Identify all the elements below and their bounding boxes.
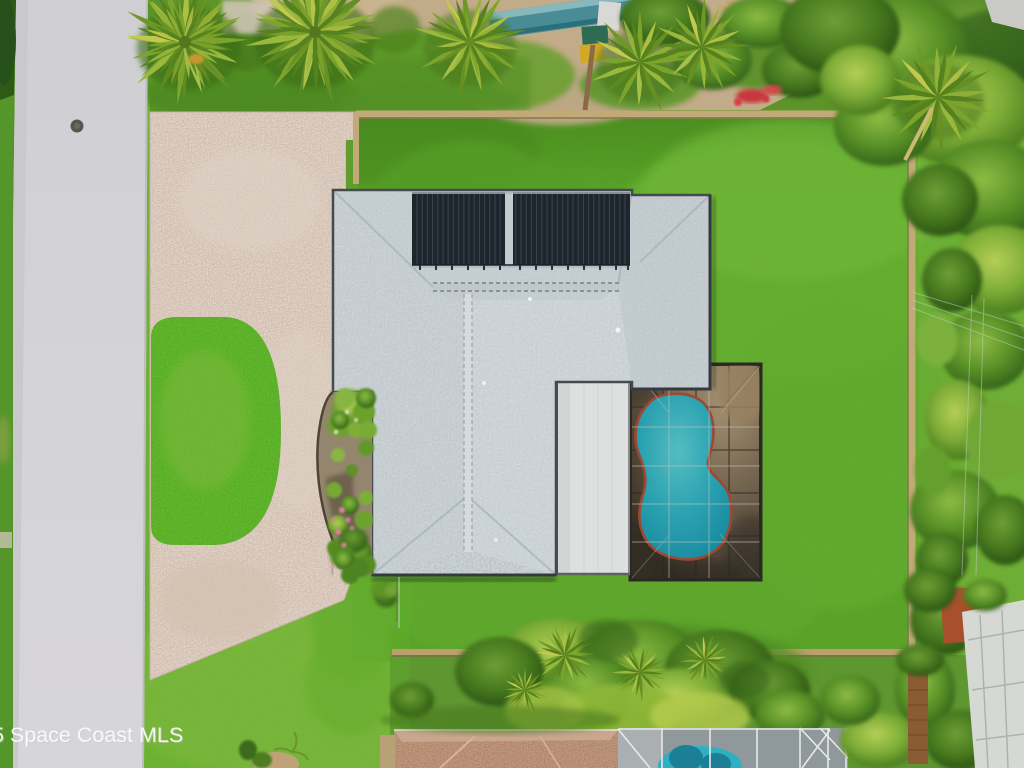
svg-text:5 Space Coast MLS: 5 Space Coast MLS [0,723,183,747]
